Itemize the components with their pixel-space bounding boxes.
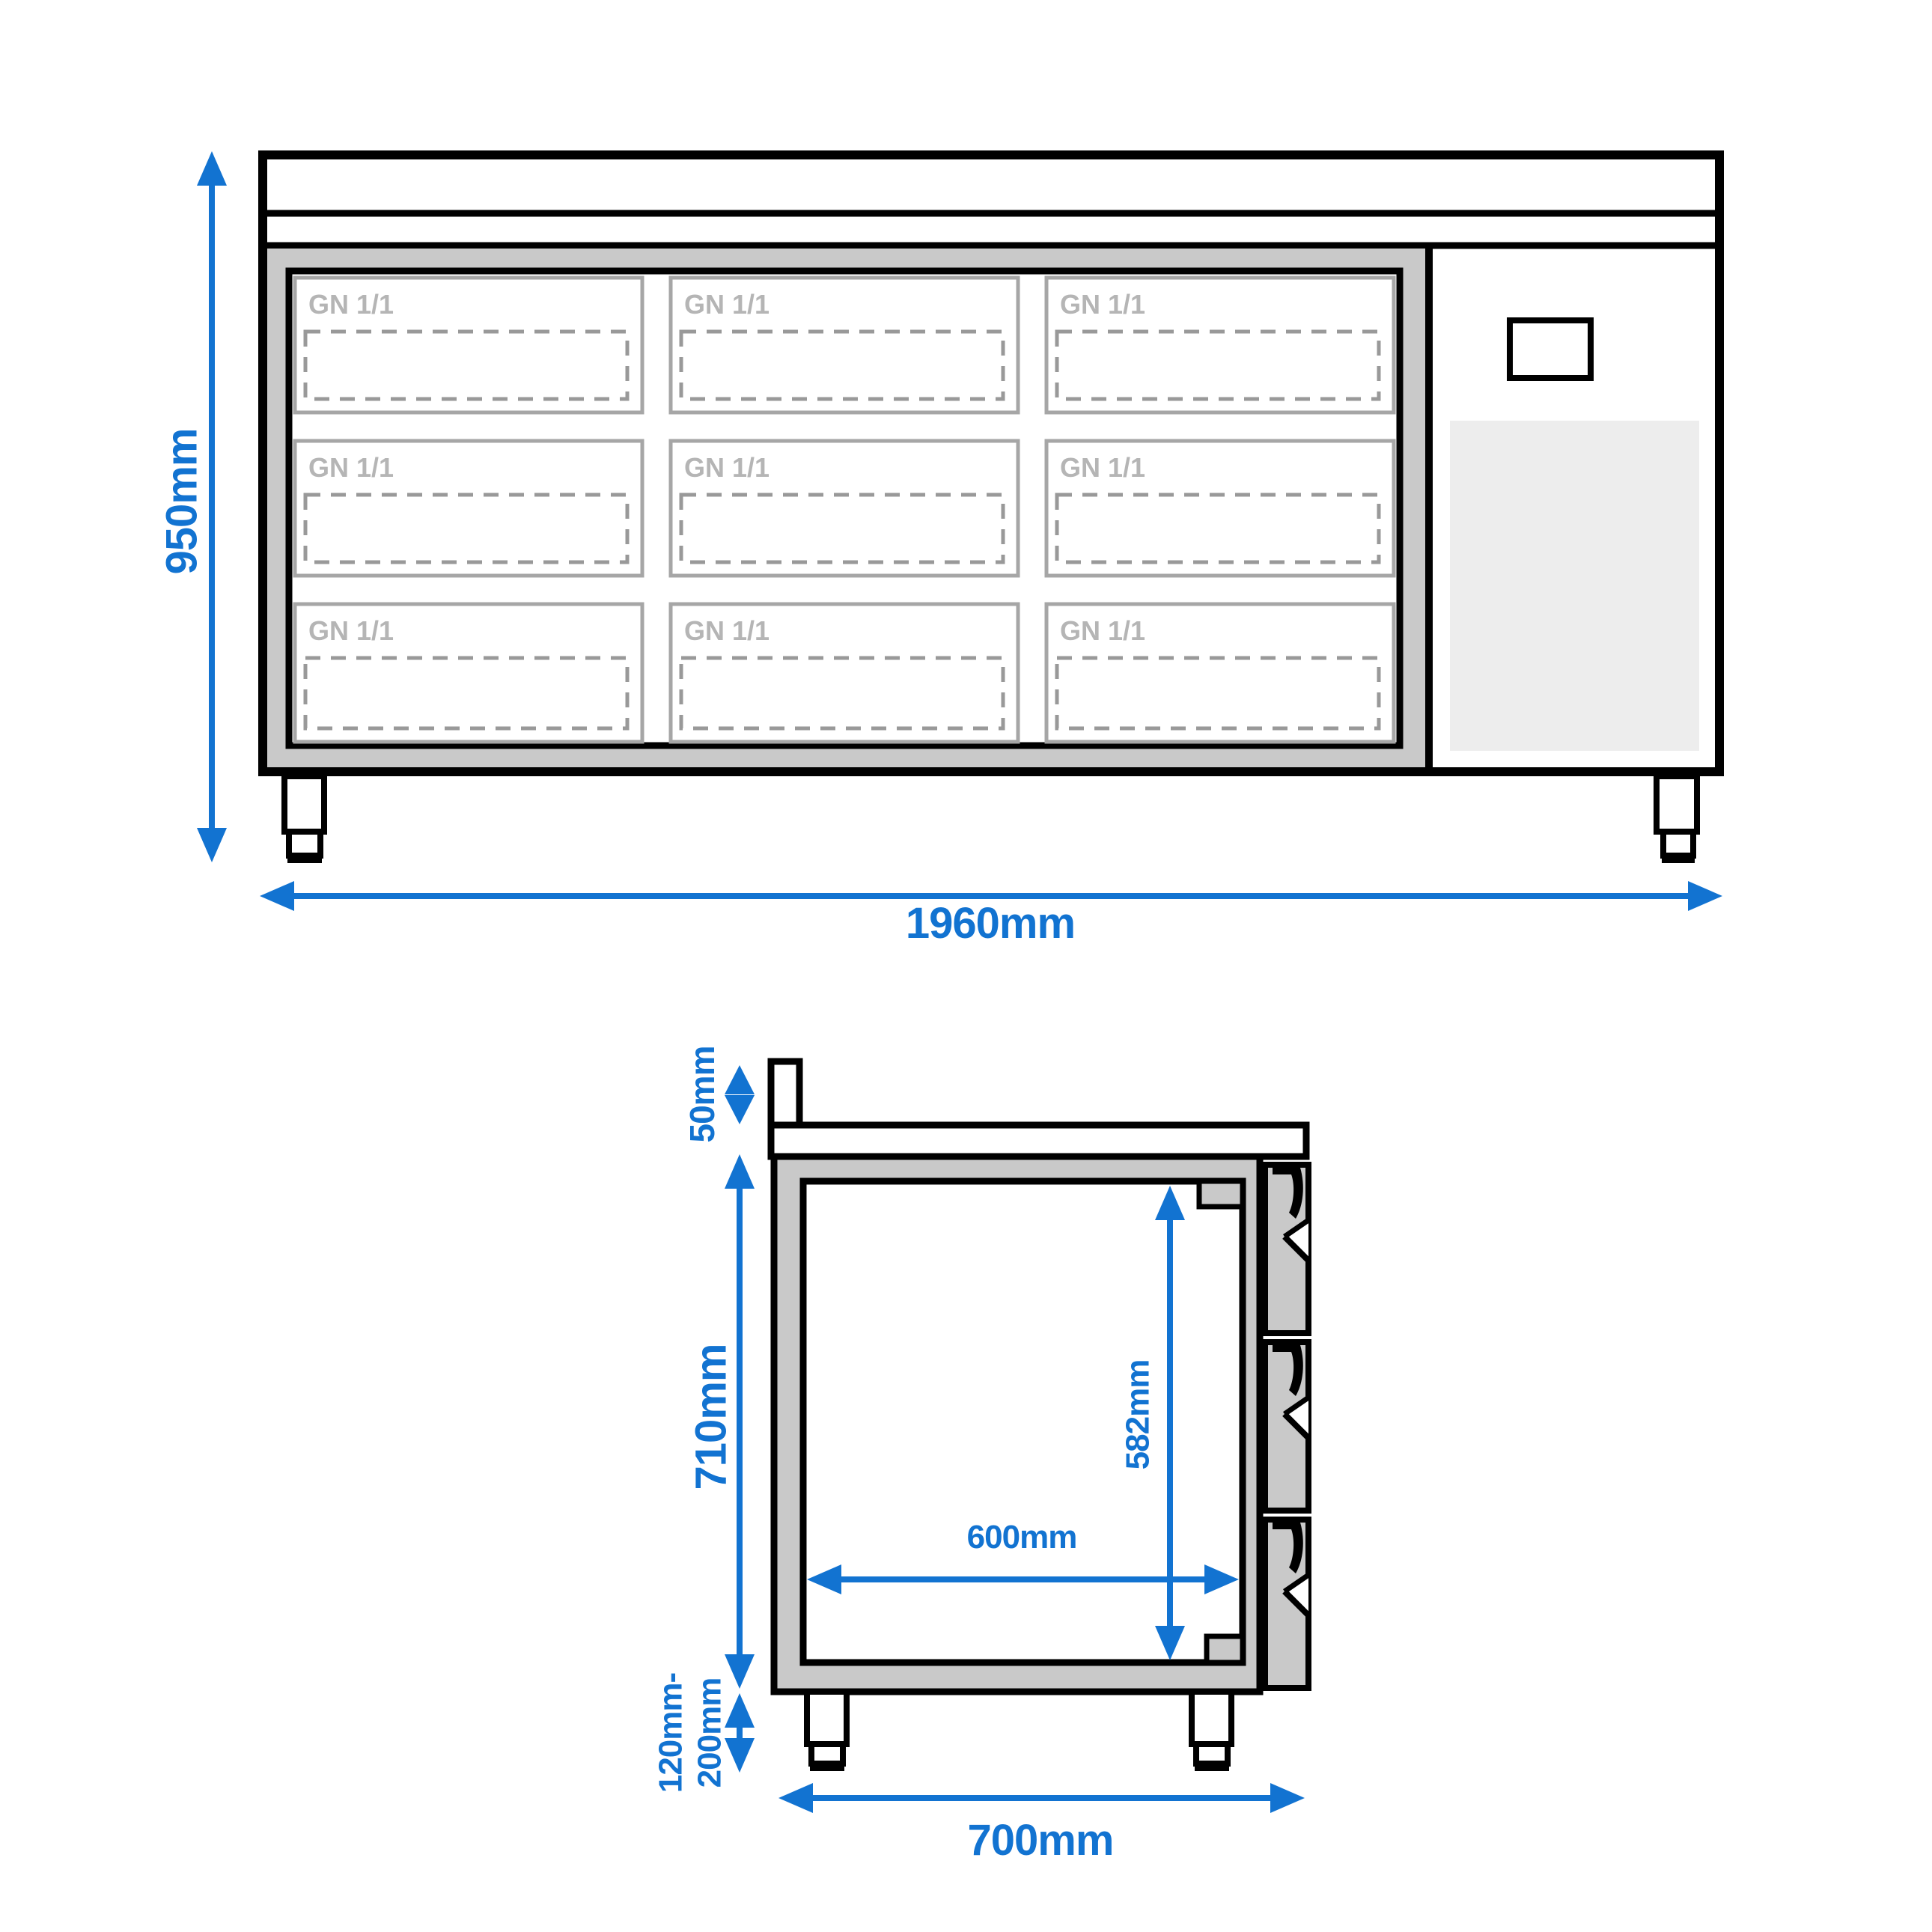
gn-size-label: GN 1/1 bbox=[1060, 615, 1145, 646]
door-panel: GN 1/1 bbox=[671, 278, 1018, 412]
leg-side-right bbox=[1192, 1692, 1231, 1771]
inner-cavity bbox=[803, 1181, 1243, 1663]
arrow-up-icon bbox=[725, 1154, 755, 1189]
door-panel: GN 1/1 bbox=[1046, 278, 1394, 412]
leg-upper bbox=[1192, 1692, 1231, 1744]
leg-upper bbox=[284, 776, 324, 832]
dimension-inner-height-label: 582mm bbox=[1120, 1360, 1157, 1470]
gn-size-label: GN 1/1 bbox=[308, 452, 394, 483]
dimension-width-label: 1960mm bbox=[906, 899, 1075, 948]
arrow-right-icon bbox=[1270, 1783, 1305, 1813]
leg-foot-base bbox=[287, 853, 322, 863]
control-display bbox=[1510, 320, 1591, 378]
door-panel: GN 1/1 bbox=[295, 441, 642, 576]
cavity-top-step bbox=[1199, 1181, 1243, 1207]
dimension-leg-height-label-1: 120mm- bbox=[653, 1673, 689, 1793]
arrow-up-icon bbox=[725, 1693, 755, 1728]
gn-size-label: GN 1/1 bbox=[1060, 452, 1145, 483]
gn-size-label: GN 1/1 bbox=[1060, 289, 1145, 320]
dimension-leg-height-120-200: 120mm- 200mm bbox=[653, 1673, 755, 1793]
arrow-left-icon bbox=[778, 1783, 813, 1813]
technical-drawing: GN 1/1 GN 1/1 GN 1/1 GN 1/1 GN 1/1 GN 1/… bbox=[0, 0, 1932, 1932]
arrow-down-icon bbox=[197, 828, 227, 862]
door-panel: GN 1/1 bbox=[1046, 604, 1394, 742]
arrow-up-icon bbox=[197, 151, 227, 186]
dimension-upstand-50: 50mm bbox=[683, 1046, 755, 1143]
drawer-front bbox=[1265, 1342, 1308, 1511]
arrow-down-icon bbox=[725, 1738, 755, 1773]
gn-size-label: GN 1/1 bbox=[308, 615, 394, 646]
leg-foot bbox=[289, 832, 320, 856]
door-panel: GN 1/1 bbox=[671, 441, 1018, 576]
door-panel: GN 1/1 bbox=[1046, 441, 1394, 576]
gn-size-label: GN 1/1 bbox=[308, 289, 394, 320]
arrow-left-icon bbox=[260, 881, 294, 911]
arrow-down-icon bbox=[725, 1654, 755, 1689]
dimension-depth-700: 700mm bbox=[778, 1783, 1305, 1865]
cavity-bottom-step bbox=[1207, 1636, 1243, 1663]
gn-size-label: GN 1/1 bbox=[684, 452, 770, 483]
gn-size-label: GN 1/1 bbox=[684, 615, 770, 646]
drawer-front bbox=[1265, 1520, 1308, 1688]
vent-panel bbox=[1450, 421, 1699, 751]
dimension-body-height-710: 710mm bbox=[687, 1154, 755, 1689]
upstand bbox=[771, 1061, 799, 1125]
arrow-down-icon bbox=[725, 1095, 755, 1124]
dimension-width-1960: 1960mm bbox=[260, 881, 1722, 948]
door-panel: GN 1/1 bbox=[295, 604, 642, 742]
dimension-height-950: 950mm bbox=[158, 151, 228, 862]
dimension-depth-label: 700mm bbox=[968, 1816, 1114, 1865]
leg-upper bbox=[807, 1692, 847, 1744]
leg-foot bbox=[1663, 832, 1693, 856]
side-view: 50mm 710mm 120mm- 200mm 600mm bbox=[653, 1046, 1309, 1865]
leg-foot-base bbox=[810, 1761, 844, 1771]
leg-side-left bbox=[807, 1692, 847, 1771]
dimension-height-label: 950mm bbox=[158, 429, 207, 575]
leg-foot-base bbox=[1195, 1761, 1229, 1771]
dimension-upstand-label: 50mm bbox=[683, 1046, 722, 1143]
arrow-right-icon bbox=[1688, 881, 1722, 911]
door-panel: GN 1/1 bbox=[295, 278, 642, 412]
leg-front-right bbox=[1657, 776, 1697, 863]
worktop bbox=[771, 1125, 1306, 1157]
drawer-front bbox=[1265, 1165, 1308, 1333]
leg-front-left bbox=[284, 776, 324, 863]
front-view: GN 1/1 GN 1/1 GN 1/1 GN 1/1 GN 1/1 GN 1/… bbox=[158, 151, 1723, 948]
dimension-inner-depth-label: 600mm bbox=[967, 1519, 1077, 1555]
dimension-body-height-label: 710mm bbox=[687, 1344, 736, 1490]
leg-foot-base bbox=[1662, 853, 1695, 863]
dimension-leg-height-label-2: 200mm bbox=[692, 1678, 728, 1788]
gn-size-label: GN 1/1 bbox=[684, 289, 770, 320]
arrow-up-icon bbox=[725, 1065, 755, 1094]
door-panel: GN 1/1 bbox=[671, 604, 1018, 742]
leg-upper bbox=[1657, 776, 1697, 832]
